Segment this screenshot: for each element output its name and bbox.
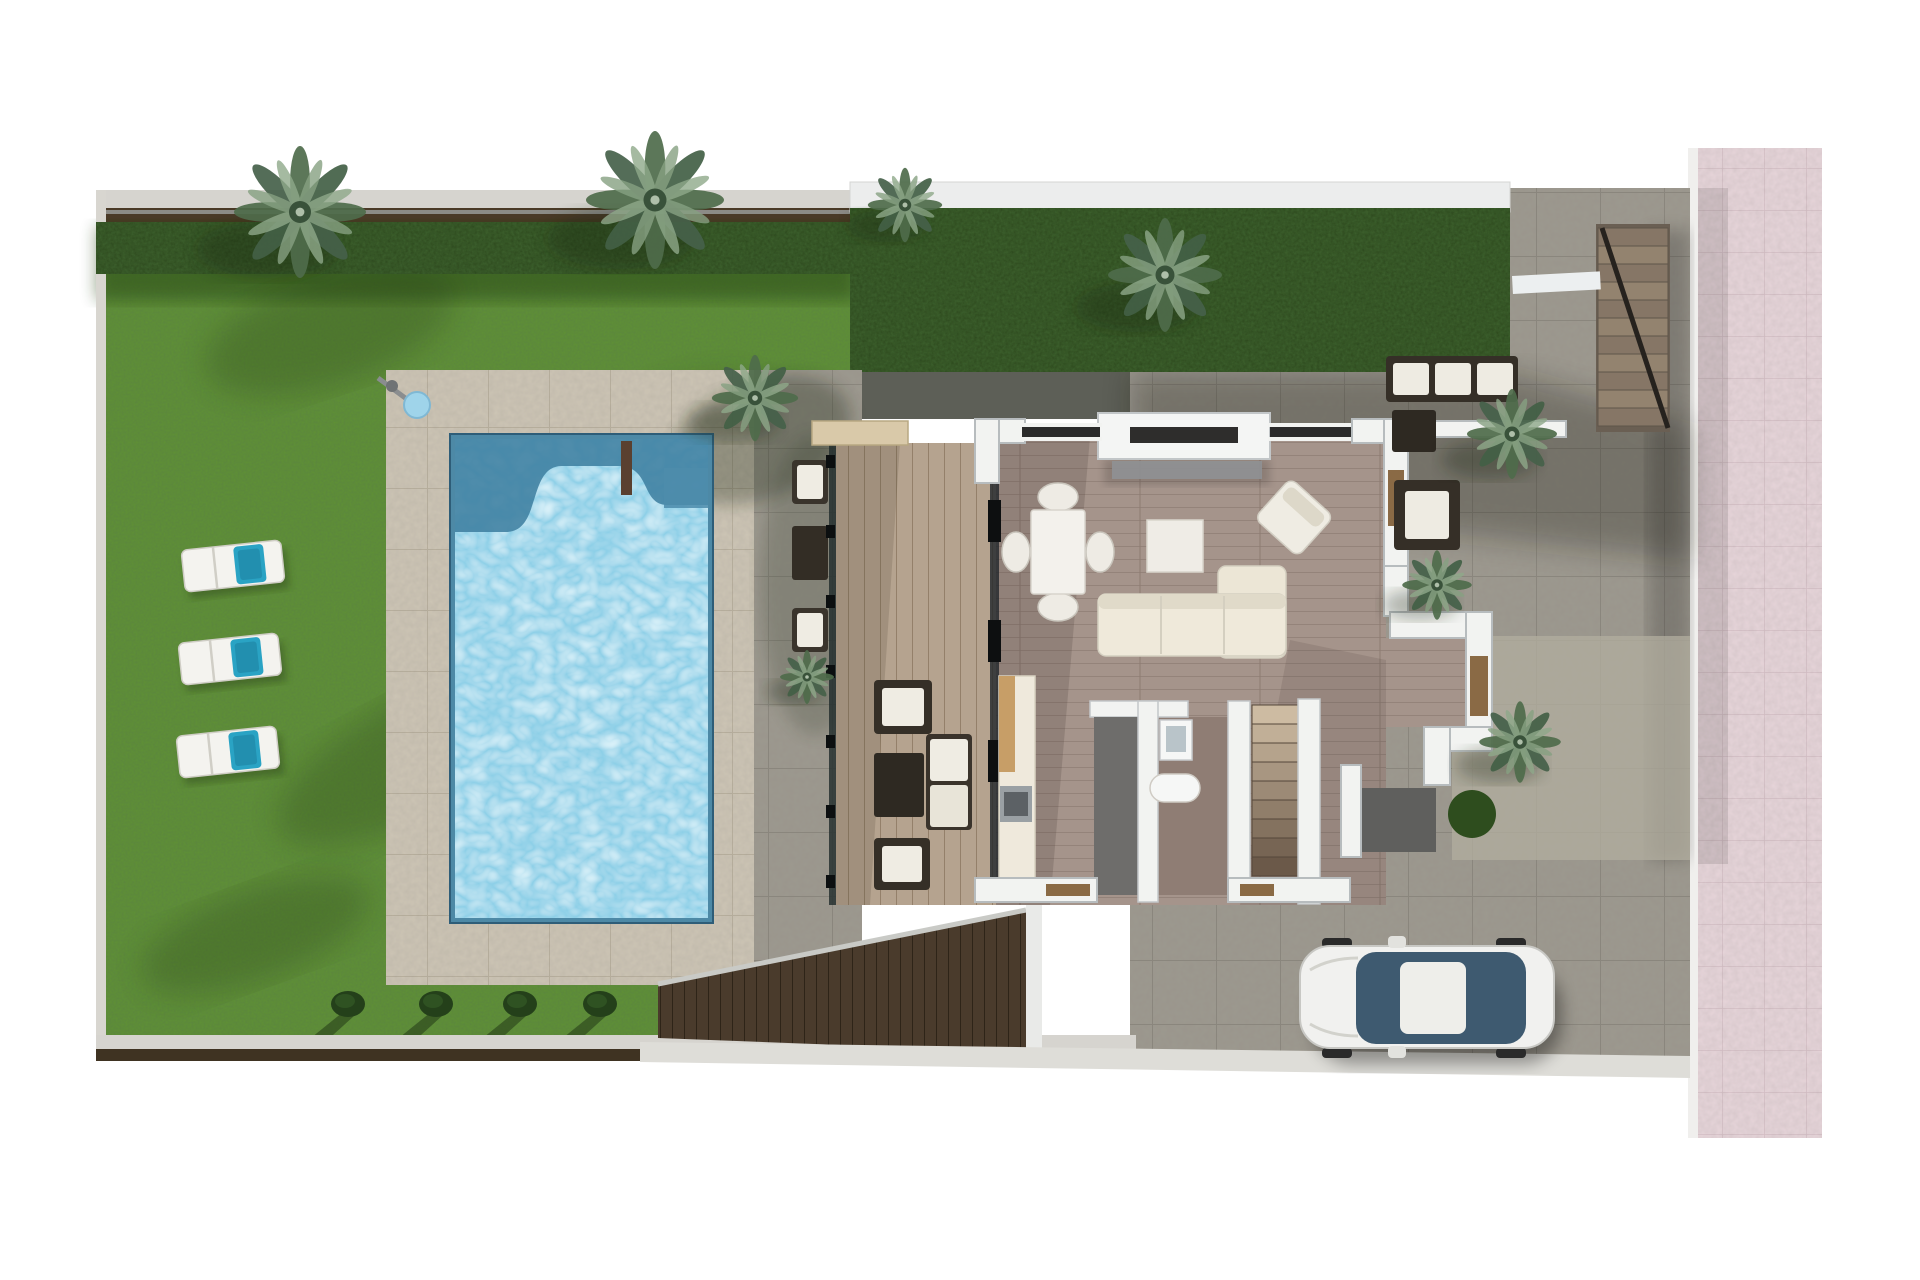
window-glass xyxy=(1270,427,1354,437)
stair-step xyxy=(1252,724,1298,743)
sun-loungers xyxy=(176,539,290,785)
bathroom-wall-dark xyxy=(1094,717,1138,895)
car-wheel xyxy=(1496,1048,1526,1058)
interior-staircase xyxy=(1252,699,1320,904)
wall-segment xyxy=(1228,701,1250,902)
palm-tree-icon xyxy=(868,168,942,242)
stair-step xyxy=(1598,354,1668,372)
car-roof xyxy=(1400,962,1466,1034)
stair-step xyxy=(1598,372,1668,390)
dining-table xyxy=(1031,510,1085,594)
kitchen xyxy=(999,676,1035,888)
sofa-cushion xyxy=(930,739,968,781)
swimming-pool xyxy=(449,433,714,924)
car-wheel xyxy=(1322,1048,1352,1058)
balustrade-post xyxy=(826,875,835,888)
window-sill xyxy=(1268,437,1356,441)
balustrade-post xyxy=(826,735,835,748)
window-sill xyxy=(1020,423,1102,427)
palm-tree-icon xyxy=(712,355,798,441)
sofa-cushion xyxy=(1393,363,1429,395)
travertine-bar xyxy=(812,421,908,445)
wall-segment xyxy=(1138,701,1158,902)
stair-step xyxy=(1252,705,1298,724)
interior-steps xyxy=(1252,705,1298,876)
dining-chair xyxy=(1086,532,1114,572)
door-threshold xyxy=(1240,884,1274,896)
ramp-side-wall xyxy=(1026,903,1042,1055)
chair-cushion xyxy=(797,613,823,647)
wall-segment xyxy=(975,419,999,483)
palm-tree-icon xyxy=(1402,550,1472,620)
site-plan-canvas xyxy=(0,0,1920,1280)
stair-step xyxy=(1252,743,1298,762)
bush-icon xyxy=(503,991,537,1017)
wall-segment xyxy=(1424,727,1450,785)
entrance-mat xyxy=(1362,788,1436,852)
car xyxy=(1300,936,1562,1064)
stair-step xyxy=(1598,336,1668,354)
rear-wall xyxy=(850,182,1510,212)
deck-table xyxy=(874,753,924,817)
palm-tree-icon xyxy=(586,131,724,269)
sidewalk xyxy=(1684,148,1822,1138)
palm-tree-icon xyxy=(780,650,834,704)
stair-step xyxy=(1252,819,1298,838)
wall-shadow xyxy=(1698,188,1728,864)
balustrade-post xyxy=(826,525,835,538)
car-mirror xyxy=(1388,1046,1406,1058)
rear-yard-strip xyxy=(850,372,1130,419)
stair-wall xyxy=(1298,699,1320,904)
garden-top-path xyxy=(96,190,856,208)
dining-chair xyxy=(1038,593,1078,621)
door-frame xyxy=(988,620,1001,662)
pool-steps xyxy=(664,468,710,508)
sofa-cushion xyxy=(1477,363,1513,395)
bathtub xyxy=(1150,774,1200,802)
sofa-cushion xyxy=(930,785,968,827)
stair-step xyxy=(1252,762,1298,781)
coffee-table xyxy=(1147,520,1203,572)
entry-bush xyxy=(1448,790,1496,838)
stair-step xyxy=(1252,781,1298,800)
balustrade-post xyxy=(826,455,835,468)
palm-tree-icon xyxy=(1479,701,1561,783)
bathroom xyxy=(1090,701,1250,902)
wall-segment xyxy=(1341,765,1361,857)
bush-icon xyxy=(331,991,365,1017)
palm-tree-icon xyxy=(1467,389,1557,479)
stair-step xyxy=(1252,857,1298,876)
hall-floor xyxy=(1386,638,1466,727)
window-sill xyxy=(1268,423,1356,427)
stair-step xyxy=(1252,838,1298,857)
palm-tree-icon xyxy=(234,146,366,278)
palm-tree-icon xyxy=(1108,218,1222,332)
shower-valve xyxy=(386,380,398,392)
kitchen-cabinet xyxy=(999,676,1015,772)
entrance-door xyxy=(1470,656,1488,716)
left-curb xyxy=(96,190,106,1035)
tv-screen xyxy=(1130,427,1238,443)
sink-basin xyxy=(1166,726,1186,752)
tv-console xyxy=(1112,461,1262,479)
bush-icon xyxy=(583,991,617,1017)
car-mirror xyxy=(1388,936,1406,948)
stair-step xyxy=(1598,408,1668,426)
floor-plan-rendering xyxy=(0,0,1920,1280)
dining-chair xyxy=(1002,532,1030,572)
chair-cushion xyxy=(797,465,823,499)
door-threshold xyxy=(1046,884,1090,896)
armchair-cushion xyxy=(1405,491,1449,539)
balustrade-post xyxy=(826,595,835,608)
window-glass xyxy=(1022,427,1100,437)
balustrade-post xyxy=(826,805,835,818)
sofa-back xyxy=(1098,594,1286,609)
armchair-cushion xyxy=(882,846,922,882)
bush-icon xyxy=(419,991,453,1017)
poolside-seating xyxy=(792,460,828,652)
door-frame xyxy=(988,500,1001,542)
sofa-cushion xyxy=(1435,363,1471,395)
stair-step xyxy=(1598,282,1668,300)
stair-step xyxy=(1252,800,1298,819)
dining-chair xyxy=(1038,483,1078,511)
shower-head xyxy=(404,392,430,418)
pool-bench-slat xyxy=(621,441,632,495)
poolside-table xyxy=(792,526,828,580)
armchair-cushion xyxy=(882,688,924,726)
window-sill xyxy=(1020,437,1102,441)
cooktop xyxy=(1004,792,1028,816)
outdoor-table xyxy=(1392,410,1436,452)
stair-step xyxy=(1598,264,1668,282)
